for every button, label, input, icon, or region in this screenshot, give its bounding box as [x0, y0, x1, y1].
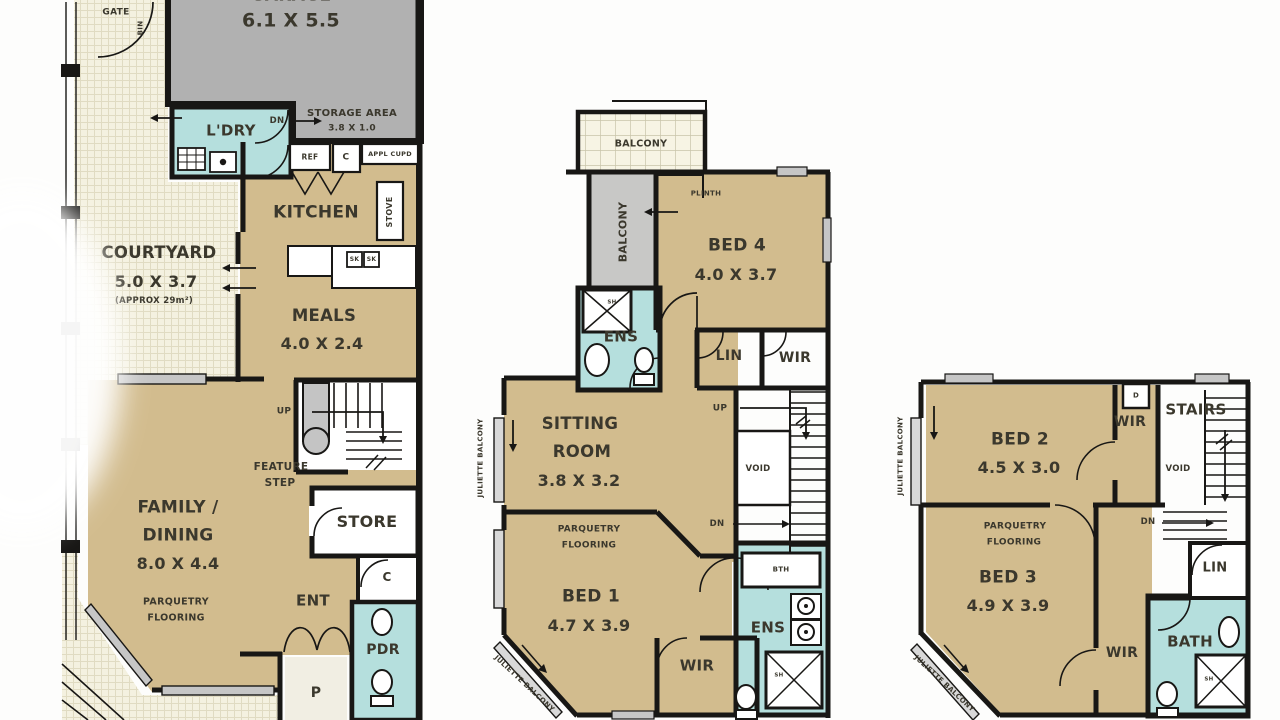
window	[494, 530, 504, 608]
label-parquetry: PARQUETRY	[984, 523, 1047, 532]
label-juliette: JULIETTE BALCONY	[478, 418, 485, 497]
basin-icon	[585, 344, 609, 376]
label-meals-dims: 4.0 X 2.4	[281, 336, 364, 352]
label-bed1: BED 1	[562, 589, 620, 606]
toilet-icon	[1157, 682, 1177, 706]
label-lin: LIN	[1203, 562, 1228, 575]
label-shower: SH	[774, 673, 783, 679]
label-ens: ENS	[604, 330, 639, 345]
label-garage: GARAGE	[251, 0, 332, 5]
basin-icon	[1219, 617, 1239, 647]
label-ref: REF	[302, 153, 319, 161]
stairs-treads	[790, 392, 828, 546]
label-bed3: BED 3	[979, 570, 1037, 587]
label-lin: LIN	[716, 349, 743, 363]
label-balcony-vert: BALCONY	[618, 202, 629, 263]
basin-icon	[372, 609, 392, 635]
label-wir: WIR	[680, 659, 715, 674]
label-bed1-dims: 4.7 X 3.9	[548, 618, 631, 634]
toilet-icon	[736, 685, 756, 709]
label-juliette: JULIETTE BALCONY	[898, 416, 905, 495]
juliette-railing	[911, 418, 921, 505]
label-stove: STOVE	[386, 197, 394, 228]
label-courtyard-dims: 5.0 X 3.7	[115, 274, 198, 290]
label-dining: DINING	[143, 528, 214, 545]
window	[162, 686, 274, 695]
label-room: ROOM	[553, 444, 611, 461]
label-sitting: SITTING	[542, 416, 619, 433]
label-flooring: FLOORING	[147, 613, 204, 623]
window	[1195, 374, 1229, 383]
label-closet: C	[382, 571, 391, 583]
toilet-icon	[635, 348, 653, 372]
label-bed4: BED 4	[708, 238, 766, 255]
arrow-icon	[1221, 494, 1229, 502]
label-flooring: FLOORING	[987, 539, 1041, 548]
label-storage-dims: 3.8 X 1.0	[328, 125, 376, 134]
label-pdr: PDR	[366, 643, 400, 657]
label-ent: ENT	[296, 594, 330, 609]
label-feature: FEATURE	[254, 462, 309, 473]
juliette-railing	[494, 418, 504, 502]
second-floor-plan	[911, 374, 1250, 720]
label-bed2: BED 2	[991, 432, 1049, 449]
label-plinth: PLINTH	[691, 191, 722, 198]
label-parquetry: PARQUETRY	[558, 526, 621, 535]
label-garage-dims: 6.1 X 5.5	[242, 12, 340, 31]
arrow-icon	[782, 520, 790, 528]
courtyard-paving	[74, 0, 168, 182]
label-ens: ENS	[751, 621, 786, 636]
label-sink: SK	[367, 257, 377, 263]
label-family: FAMILY /	[137, 500, 218, 517]
label-sitting-dims: 3.8 X 3.2	[538, 473, 621, 489]
label-dn: DN	[1141, 518, 1156, 527]
label-wir: WIR	[1106, 646, 1138, 660]
label-flooring: FLOORING	[562, 542, 616, 551]
label-wir: WIR	[1114, 415, 1146, 429]
washing-machine-icon	[178, 148, 205, 170]
label-bed3-dims: 4.9 X 3.9	[967, 598, 1050, 614]
label-stairs: STAIRS	[1165, 403, 1226, 418]
label-bath-tub: BTH	[773, 567, 790, 574]
label-storage-area: STORAGE AREA	[307, 109, 397, 119]
label-bed4-dims: 4.0 X 3.7	[695, 267, 778, 283]
label-bath: BATH	[1167, 635, 1213, 650]
label-void: VOID	[1165, 465, 1190, 474]
label-dn: DN	[710, 520, 725, 529]
window	[945, 374, 993, 383]
label-courtyard-approx: (APPROX 29m²)	[115, 297, 193, 306]
label-shower: SH	[607, 300, 616, 306]
label-step: STEP	[265, 478, 296, 489]
floorplan-image: GARAGE 6.1 X 5.5 GATE BIN STORAGE AREA 3…	[0, 0, 1280, 720]
window	[612, 711, 654, 719]
label-meals: MEALS	[292, 308, 356, 325]
label-up: UP	[713, 405, 728, 414]
label-cupboard-d: D	[1133, 393, 1139, 400]
label-family-dims: 8.0 X 4.4	[137, 556, 220, 572]
label-dn: DN	[270, 117, 285, 126]
label-sink: SK	[350, 257, 360, 263]
label-porch: P	[311, 686, 322, 700]
label-bin: BIN	[138, 21, 145, 36]
label-laundry: L'DRY	[206, 124, 256, 139]
label-parquetry: PARQUETRY	[143, 597, 209, 607]
window	[118, 374, 206, 384]
label-kitchen: KITCHEN	[273, 205, 359, 222]
label-shower: SH	[1204, 677, 1213, 683]
label-courtyard: COURTYARD	[102, 245, 217, 262]
label-up: UP	[277, 408, 292, 417]
arrow-icon	[1206, 519, 1214, 527]
toilet-icon	[372, 670, 392, 694]
label-void: VOID	[745, 465, 770, 474]
label-store: STORE	[337, 514, 398, 530]
window	[823, 218, 831, 262]
label-bed2-dims: 4.5 X 3.0	[978, 460, 1061, 476]
label-appl-cupd: APPL CUPD	[368, 151, 412, 158]
window	[777, 167, 807, 176]
label-wir: WIR	[779, 351, 811, 365]
label-cupboard: C	[343, 154, 350, 163]
label-gate: GATE	[102, 9, 129, 18]
label-balcony: BALCONY	[615, 139, 668, 149]
